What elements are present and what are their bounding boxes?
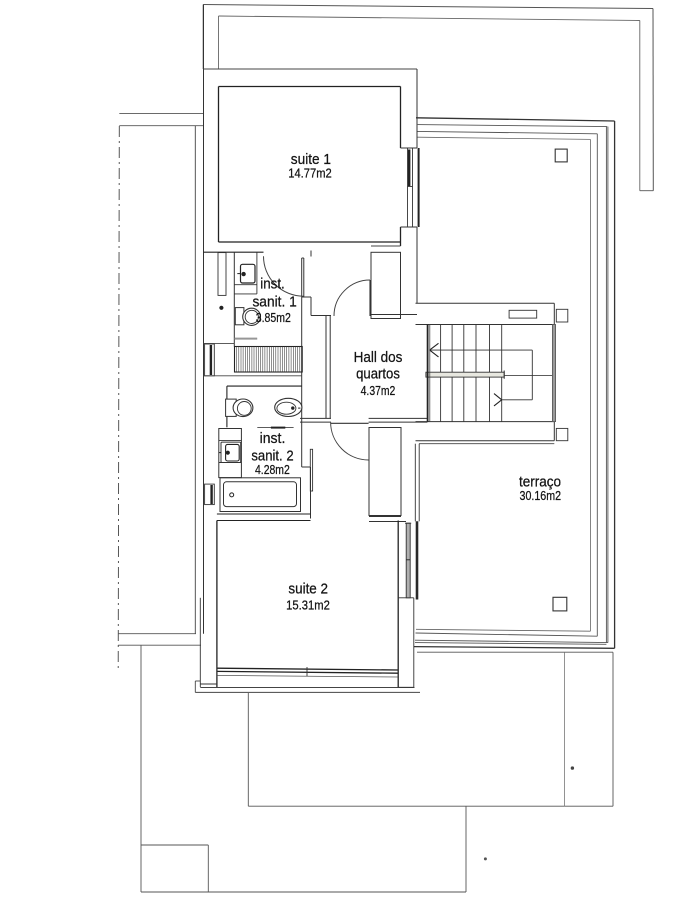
svg-text:4.37m2: 4.37m2 (361, 383, 396, 398)
svg-text:inst.: inst. (260, 430, 286, 447)
svg-text:15.31m2: 15.31m2 (286, 597, 330, 612)
svg-text:3.85m2: 3.85m2 (256, 310, 291, 325)
svg-text:sanit. 1: sanit. 1 (252, 293, 296, 310)
svg-text:14.77m2: 14.77m2 (288, 166, 332, 181)
svg-text:inst.: inst. (260, 276, 285, 293)
svg-text:suite 2: suite 2 (288, 581, 328, 598)
svg-text:30.16m2: 30.16m2 (520, 488, 562, 503)
svg-text:4.28m2: 4.28m2 (255, 462, 290, 477)
svg-text:Hall dos: Hall dos (354, 349, 403, 366)
svg-text:quartos: quartos (356, 366, 400, 383)
